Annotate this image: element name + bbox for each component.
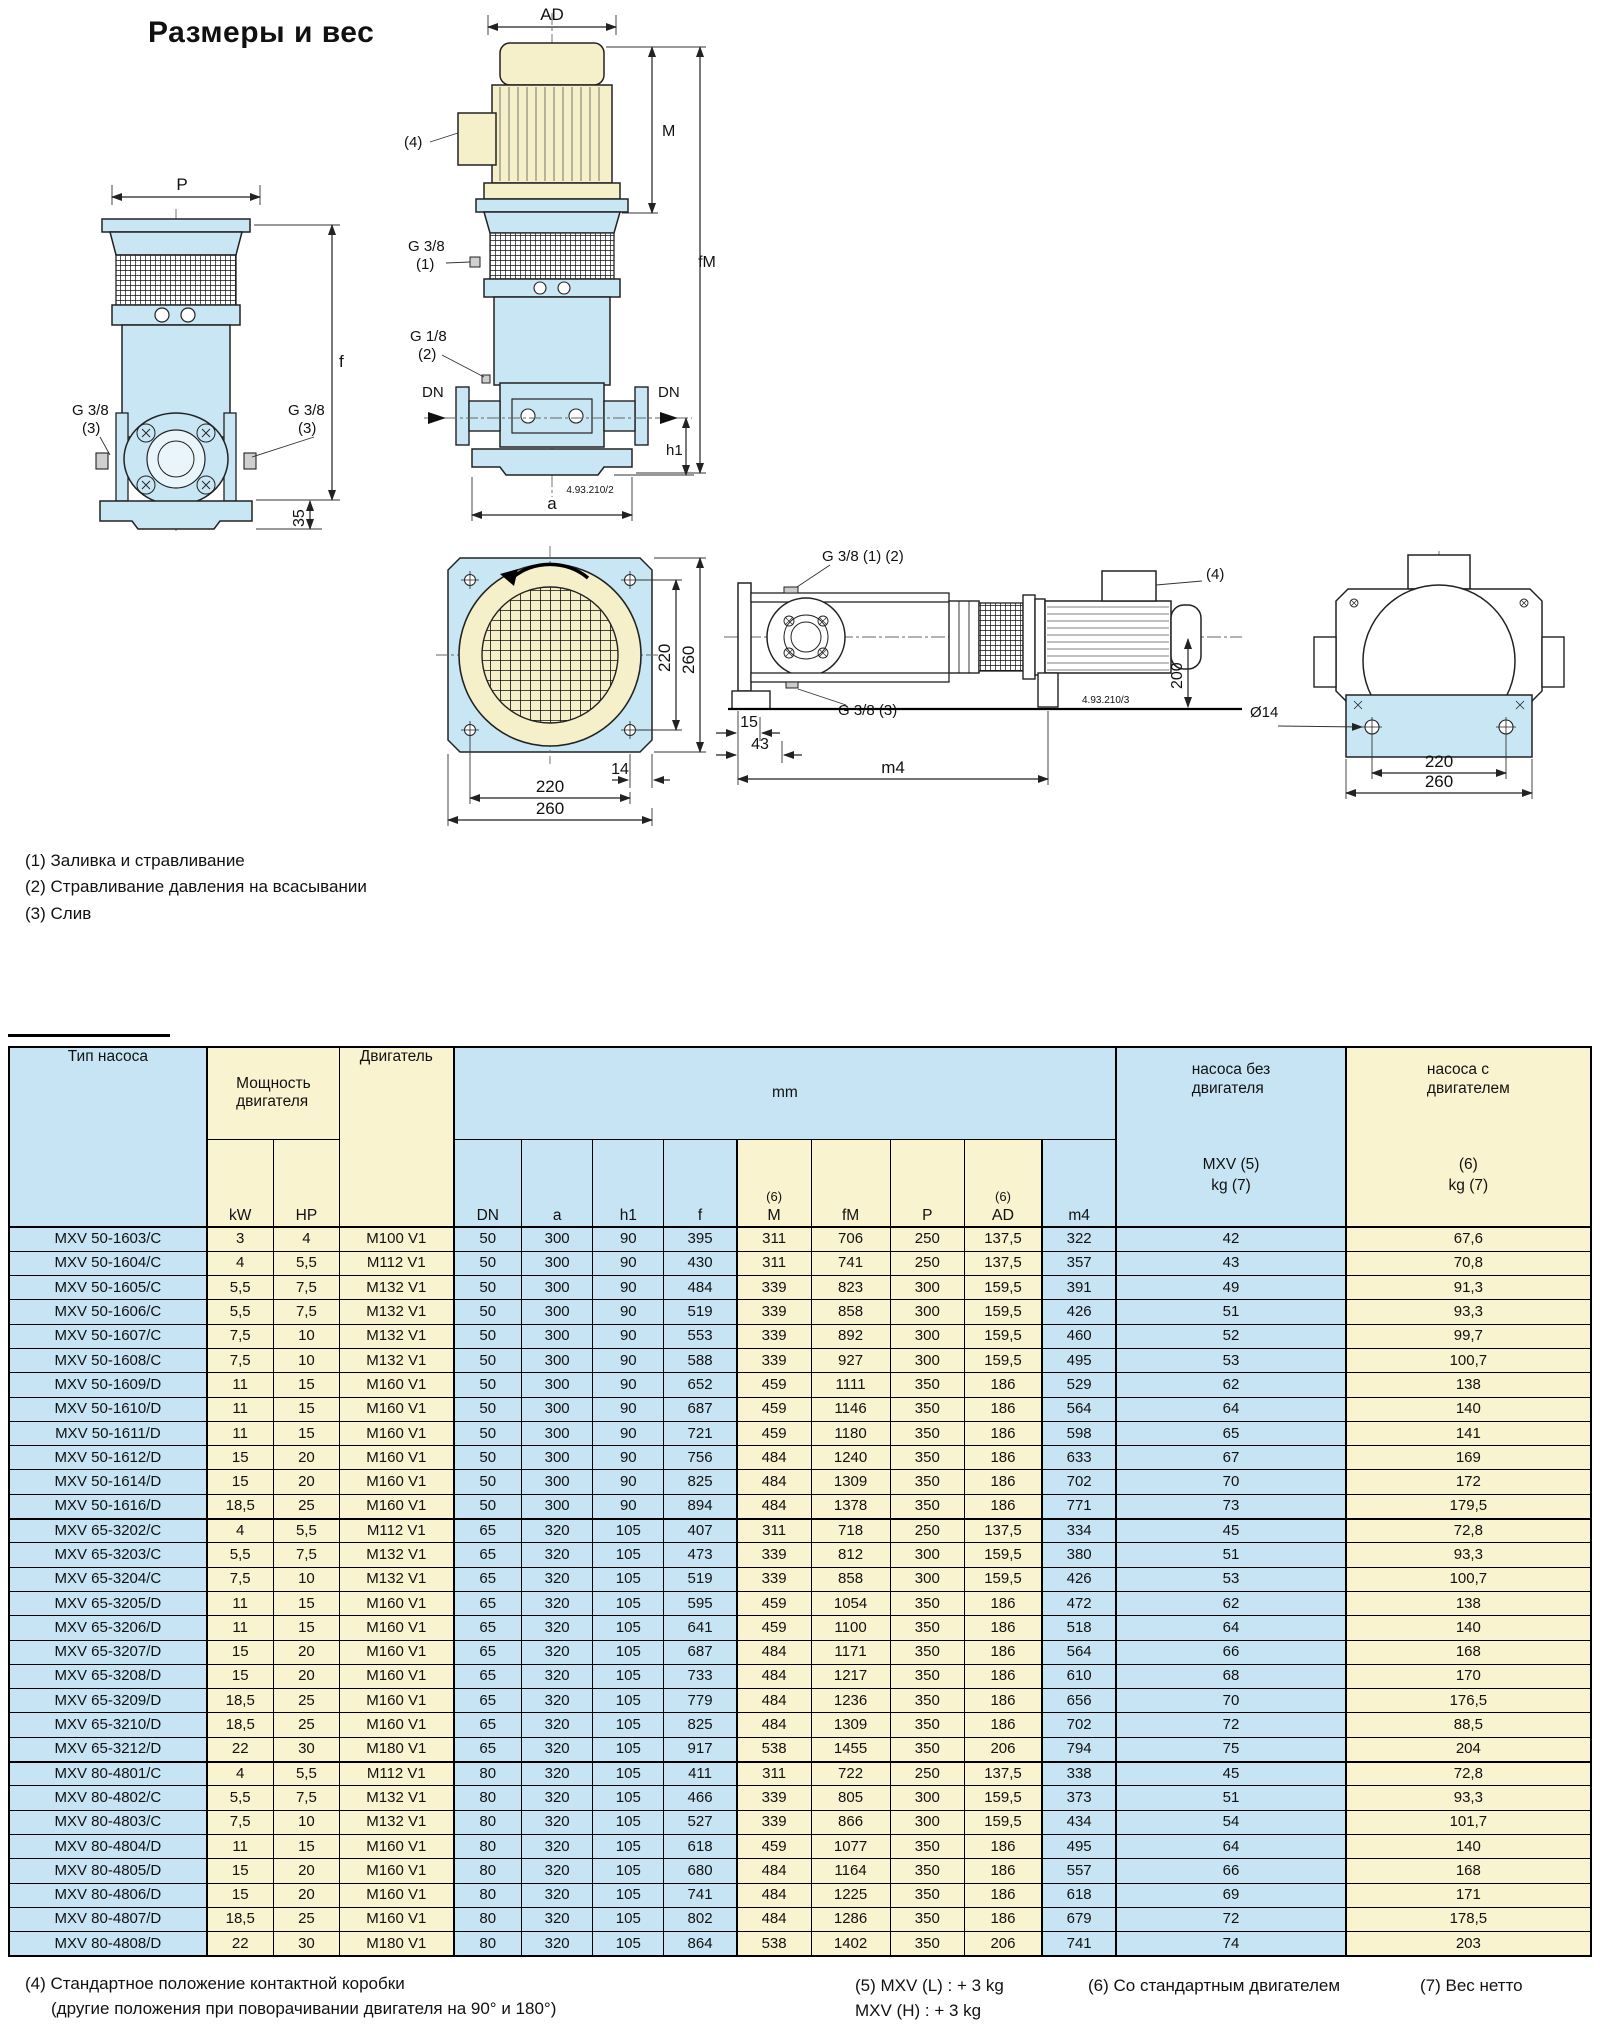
value-cell: 894	[664, 1494, 737, 1518]
value-cell: M132 V1	[340, 1786, 454, 1810]
value-cell: 1240	[811, 1446, 890, 1470]
value-cell: 93,3	[1346, 1786, 1591, 1810]
value-cell: M160 V1	[340, 1591, 454, 1615]
value-cell: 50	[454, 1324, 522, 1348]
table-row: MXV 50-1611/D1115M160 V15030090721459118…	[9, 1421, 1591, 1445]
value-cell: 350	[890, 1591, 964, 1615]
value-cell: 159,5	[964, 1567, 1042, 1591]
value-cell: 62	[1116, 1591, 1345, 1615]
value-cell: 825	[664, 1713, 737, 1737]
value-cell: 25	[273, 1713, 339, 1737]
col-header-with-motor: насоса с двигателем (6) kg (7)	[1346, 1047, 1591, 1227]
value-cell: 15	[207, 1883, 273, 1907]
value-cell: 484	[737, 1664, 811, 1688]
value-cell: 90	[593, 1373, 664, 1397]
pump-type-cell: MXV 65-3207/D	[9, 1640, 207, 1664]
value-cell: 51	[1116, 1543, 1345, 1567]
value-cell: 186	[964, 1591, 1042, 1615]
pump-type-cell: MXV 50-1603/C	[9, 1227, 207, 1251]
table-row: MXV 65-3209/D18,525M160 V165320105779484…	[9, 1689, 1591, 1713]
value-cell: 159,5	[964, 1276, 1042, 1300]
pump-type-cell: MXV 65-3205/D	[9, 1591, 207, 1615]
value-cell: 105	[593, 1713, 664, 1737]
table-row: MXV 80-4804/D1115M160 V18032010561845910…	[9, 1834, 1591, 1858]
value-cell: 459	[737, 1397, 811, 1421]
value-cell: 15	[207, 1640, 273, 1664]
value-cell: 7,5	[273, 1786, 339, 1810]
value-cell: 72,8	[1346, 1762, 1591, 1786]
value-cell: 50	[454, 1494, 522, 1518]
value-cell: 50	[454, 1470, 522, 1494]
value-cell: 100,7	[1346, 1567, 1591, 1591]
value-cell: 656	[1042, 1689, 1116, 1713]
value-cell: M132 V1	[340, 1324, 454, 1348]
value-cell: 598	[1042, 1421, 1116, 1445]
pump-type-cell: MXV 50-1610/D	[9, 1397, 207, 1421]
value-cell: 484	[737, 1907, 811, 1931]
col-header-power: Мощность двигателя	[207, 1047, 340, 1139]
value-cell: 90	[593, 1300, 664, 1324]
pump-with-motor-drawing: AD (4) M fM G 3/8 (1) G 1/8 (2)	[400, 5, 720, 540]
value-cell: 51	[1116, 1300, 1345, 1324]
dim-260-side-label: 260	[679, 646, 698, 674]
value-cell: 64	[1116, 1616, 1345, 1640]
value-cell: 53	[1116, 1348, 1345, 1372]
value-cell: 65	[454, 1713, 522, 1737]
value-cell: 426	[1042, 1300, 1116, 1324]
g38-12-label: G 3/8 (1) (2)	[822, 548, 904, 565]
value-cell: 90	[593, 1348, 664, 1372]
value-cell: 373	[1042, 1786, 1116, 1810]
value-cell: 250	[890, 1519, 964, 1543]
value-cell: 50	[454, 1348, 522, 1372]
value-cell: 300	[522, 1494, 593, 1518]
value-cell: 652	[664, 1373, 737, 1397]
value-cell: 88,5	[1346, 1713, 1591, 1737]
value-cell: 350	[890, 1494, 964, 1518]
value-cell: 168	[1346, 1640, 1591, 1664]
value-cell: 80	[454, 1762, 522, 1786]
value-cell: 300	[522, 1300, 593, 1324]
value-cell: 702	[1042, 1713, 1116, 1737]
pump-type-cell: MXV 65-3212/D	[9, 1737, 207, 1761]
value-cell: 495	[1042, 1834, 1116, 1858]
value-cell: 459	[737, 1834, 811, 1858]
value-cell: 1171	[811, 1640, 890, 1664]
table-row: MXV 50-1608/C7,510M132 V1503009058833992…	[9, 1348, 1591, 1372]
value-cell: 858	[811, 1300, 890, 1324]
value-cell: 320	[522, 1713, 593, 1737]
value-cell: 105	[593, 1519, 664, 1543]
value-cell: 5,5	[273, 1519, 339, 1543]
value-cell: 186	[964, 1494, 1042, 1518]
value-cell: 90	[593, 1470, 664, 1494]
value-cell: 30	[273, 1932, 339, 1956]
value-cell: 823	[811, 1276, 890, 1300]
value-cell: 756	[664, 1446, 737, 1470]
value-cell: 300	[522, 1348, 593, 1372]
value-cell: 176,5	[1346, 1689, 1591, 1713]
value-cell: 7,5	[273, 1276, 339, 1300]
dim-43-label: 43	[751, 736, 769, 753]
value-cell: 320	[522, 1543, 593, 1567]
value-cell: 22	[207, 1932, 273, 1956]
value-cell: 80	[454, 1932, 522, 1956]
value-cell: M132 V1	[340, 1567, 454, 1591]
pump-type-cell: MXV 80-4801/C	[9, 1762, 207, 1786]
value-cell: 186	[964, 1640, 1042, 1664]
value-cell: 1455	[811, 1737, 890, 1761]
value-cell: 65	[454, 1616, 522, 1640]
table-row: MXV 80-4806/D1520M160 V18032010574148412…	[9, 1883, 1591, 1907]
value-cell: 65	[454, 1519, 522, 1543]
value-cell: 472	[1042, 1591, 1116, 1615]
value-cell: 1236	[811, 1689, 890, 1713]
value-cell: 1100	[811, 1616, 890, 1640]
value-cell: M180 V1	[340, 1737, 454, 1761]
value-cell: 518	[1042, 1616, 1116, 1640]
value-cell: 1309	[811, 1713, 890, 1737]
value-cell: 320	[522, 1932, 593, 1956]
value-cell: 186	[964, 1470, 1042, 1494]
pump-type-cell: MXV 65-3210/D	[9, 1713, 207, 1737]
col-header-kw: kW	[207, 1139, 273, 1227]
value-cell: 70	[1116, 1689, 1345, 1713]
table-row: MXV 65-3207/D1520M160 V16532010568748411…	[9, 1640, 1591, 1664]
value-cell: 553	[664, 1324, 737, 1348]
value-cell: 802	[664, 1907, 737, 1931]
value-cell: 50	[454, 1251, 522, 1275]
value-cell: 519	[664, 1300, 737, 1324]
value-cell: 93,3	[1346, 1300, 1591, 1324]
g18-label: G 1/8	[410, 328, 447, 345]
value-cell: 320	[522, 1834, 593, 1858]
value-cell: 892	[811, 1324, 890, 1348]
value-cell: 1225	[811, 1883, 890, 1907]
value-cell: 50	[454, 1276, 522, 1300]
value-cell: 300	[522, 1324, 593, 1348]
col-header-a: a	[522, 1139, 593, 1227]
pump-type-cell: MXV 50-1612/D	[9, 1446, 207, 1470]
value-cell: 7,5	[273, 1300, 339, 1324]
value-cell: 595	[664, 1591, 737, 1615]
value-cell: 172	[1346, 1470, 1591, 1494]
value-cell: 300	[522, 1251, 593, 1275]
value-cell: 52	[1116, 1324, 1345, 1348]
value-cell: M160 V1	[340, 1640, 454, 1664]
value-cell: 339	[737, 1786, 811, 1810]
value-cell: 339	[737, 1567, 811, 1591]
value-cell: 721	[664, 1421, 737, 1445]
value-cell: 50	[454, 1446, 522, 1470]
value-cell: 825	[664, 1470, 737, 1494]
value-cell: 105	[593, 1640, 664, 1664]
ref3-right-label: (3)	[298, 420, 316, 437]
value-cell: 395	[664, 1227, 737, 1251]
value-cell: 1164	[811, 1859, 890, 1883]
value-cell: 320	[522, 1664, 593, 1688]
value-cell: 138	[1346, 1591, 1591, 1615]
note-2: (2) Стравливание давления на всасывании	[25, 874, 367, 900]
value-cell: 105	[593, 1762, 664, 1786]
catalog-page: Размеры и вес P f	[0, 0, 1600, 2040]
table-row: MXV 50-1605/C5,57,5M132 V150300904843398…	[9, 1276, 1591, 1300]
value-cell: 380	[1042, 1543, 1116, 1567]
value-cell: 105	[593, 1664, 664, 1688]
value-cell: 917	[664, 1737, 737, 1761]
value-cell: 90	[593, 1251, 664, 1275]
value-cell: 320	[522, 1762, 593, 1786]
value-cell: 805	[811, 1786, 890, 1810]
value-cell: 72	[1116, 1907, 1345, 1931]
value-cell: 300	[890, 1567, 964, 1591]
value-cell: 186	[964, 1664, 1042, 1688]
value-cell: 300	[890, 1276, 964, 1300]
table-row: MXV 50-1616/D18,525M160 V150300908944841…	[9, 1494, 1591, 1518]
value-cell: 178,5	[1346, 1907, 1591, 1931]
table-row: MXV 65-3210/D18,525M160 V165320105825484…	[9, 1713, 1591, 1737]
value-cell: 4	[207, 1251, 273, 1275]
value-cell: 300	[890, 1324, 964, 1348]
value-cell: 15	[273, 1616, 339, 1640]
value-cell: 459	[737, 1373, 811, 1397]
value-cell: 484	[737, 1470, 811, 1494]
value-cell: 138	[1346, 1373, 1591, 1397]
col-header-M: (6) M	[737, 1139, 811, 1227]
value-cell: 320	[522, 1883, 593, 1907]
value-cell: 171	[1346, 1883, 1591, 1907]
value-cell: 350	[890, 1446, 964, 1470]
value-cell: 484	[737, 1883, 811, 1907]
col-header-motor: Двигатель	[340, 1047, 454, 1227]
value-cell: 30	[273, 1737, 339, 1761]
value-cell: 65	[454, 1543, 522, 1567]
value-cell: 20	[273, 1470, 339, 1494]
value-cell: 679	[1042, 1907, 1116, 1931]
value-cell: 339	[737, 1348, 811, 1372]
value-cell: 169	[1346, 1446, 1591, 1470]
value-cell: 722	[811, 1762, 890, 1786]
value-cell: 771	[1042, 1494, 1116, 1518]
ref4-side-label: (4)	[1206, 566, 1224, 583]
value-cell: 484	[737, 1689, 811, 1713]
value-cell: 350	[890, 1737, 964, 1761]
table-row: MXV 65-3212/D2230M180 V16532010591753814…	[9, 1737, 1591, 1761]
dia14-label: Ø14	[1250, 704, 1278, 721]
value-cell: 484	[664, 1276, 737, 1300]
pump-type-cell: MXV 80-4808/D	[9, 1932, 207, 1956]
value-cell: M160 V1	[340, 1713, 454, 1737]
value-cell: 300	[890, 1300, 964, 1324]
g38-right-label: G 3/8	[288, 402, 325, 419]
value-cell: 105	[593, 1932, 664, 1956]
value-cell: 5,5	[273, 1762, 339, 1786]
value-cell: M160 V1	[340, 1907, 454, 1931]
value-cell: 72	[1116, 1713, 1345, 1737]
value-cell: 64	[1116, 1397, 1345, 1421]
value-cell: 75	[1116, 1737, 1345, 1761]
value-cell: 320	[522, 1907, 593, 1931]
value-cell: 473	[664, 1543, 737, 1567]
value-cell: 105	[593, 1689, 664, 1713]
dim-220-side-label: 220	[655, 644, 674, 672]
value-cell: 633	[1042, 1446, 1116, 1470]
dimensions-weights-table: Тип насоса Мощность двигателя Двигатель …	[8, 1046, 1592, 1957]
value-cell: 66	[1116, 1859, 1345, 1883]
note-3: (3) Слив	[25, 901, 367, 927]
value-cell: 5,5	[207, 1786, 273, 1810]
value-cell: 67	[1116, 1446, 1345, 1470]
pump-type-cell: MXV 50-1614/D	[9, 1470, 207, 1494]
value-cell: 105	[593, 1859, 664, 1883]
value-cell: 69	[1116, 1883, 1345, 1907]
value-cell: 350	[890, 1689, 964, 1713]
pump-type-cell: MXV 65-3206/D	[9, 1616, 207, 1640]
value-cell: 618	[1042, 1883, 1116, 1907]
value-cell: 15	[273, 1834, 339, 1858]
pump-type-cell: MXV 80-4807/D	[9, 1907, 207, 1931]
value-cell: M112 V1	[340, 1251, 454, 1275]
dn-right-label: DN	[658, 384, 680, 401]
value-cell: 741	[664, 1883, 737, 1907]
value-cell: 1054	[811, 1591, 890, 1615]
value-cell: 11	[207, 1397, 273, 1421]
value-cell: 67,6	[1346, 1227, 1591, 1251]
value-cell: 484	[737, 1494, 811, 1518]
value-cell: M160 V1	[340, 1421, 454, 1445]
value-cell: 350	[890, 1373, 964, 1397]
page-title: Размеры и вес	[148, 16, 374, 50]
table-row: MXV 65-3208/D1520M160 V16532010573348412…	[9, 1664, 1591, 1688]
value-cell: 15	[273, 1421, 339, 1445]
dim-P-label: P	[176, 175, 187, 194]
value-cell: 459	[737, 1591, 811, 1615]
value-cell: 170	[1346, 1664, 1591, 1688]
table-row: MXV 50-1614/D1520M160 V15030090825484130…	[9, 1470, 1591, 1494]
value-cell: 320	[522, 1640, 593, 1664]
pump-type-cell: MXV 65-3204/C	[9, 1567, 207, 1591]
value-cell: 300	[890, 1348, 964, 1372]
value-cell: 49	[1116, 1276, 1345, 1300]
value-cell: 320	[522, 1689, 593, 1713]
dim-a-label: a	[547, 494, 557, 513]
pump-type-cell: MXV 80-4802/C	[9, 1786, 207, 1810]
drawing-notes: (1) Заливка и стравливание (2) Стравлива…	[25, 848, 367, 927]
value-cell: 334	[1042, 1519, 1116, 1543]
value-cell: 99,7	[1346, 1324, 1591, 1348]
value-cell: 140	[1346, 1834, 1591, 1858]
col-header-f: f	[664, 1139, 737, 1227]
value-cell: 300	[890, 1786, 964, 1810]
value-cell: 7,5	[207, 1810, 273, 1834]
value-cell: 65	[454, 1567, 522, 1591]
value-cell: 529	[1042, 1373, 1116, 1397]
pump-type-cell: MXV 80-4805/D	[9, 1859, 207, 1883]
value-cell: 25	[273, 1494, 339, 1518]
dim-AD-label: AD	[540, 5, 564, 24]
value-cell: 65	[454, 1640, 522, 1664]
value-cell: 927	[811, 1348, 890, 1372]
value-cell: 186	[964, 1421, 1042, 1445]
value-cell: 350	[890, 1664, 964, 1688]
value-cell: M180 V1	[340, 1932, 454, 1956]
value-cell: 300	[890, 1543, 964, 1567]
pump-type-cell: MXV 50-1607/C	[9, 1324, 207, 1348]
value-cell: 105	[593, 1834, 664, 1858]
value-cell: 15	[273, 1591, 339, 1615]
value-cell: 137,5	[964, 1251, 1042, 1275]
value-cell: 391	[1042, 1276, 1116, 1300]
value-cell: 68	[1116, 1664, 1345, 1688]
value-cell: 718	[811, 1519, 890, 1543]
ref1-label: (1)	[416, 256, 434, 273]
table-row: MXV 65-3204/C7,510M132 V1653201055193398…	[9, 1567, 1591, 1591]
value-cell: 105	[593, 1737, 664, 1761]
value-cell: 186	[964, 1907, 1042, 1931]
value-cell: 105	[593, 1883, 664, 1907]
value-cell: 74	[1116, 1932, 1345, 1956]
value-cell: 53	[1116, 1567, 1345, 1591]
value-cell: 65	[1116, 1421, 1345, 1445]
value-cell: 858	[811, 1567, 890, 1591]
col-header-h1: h1	[593, 1139, 664, 1227]
value-cell: 18,5	[207, 1689, 273, 1713]
value-cell: 80	[454, 1907, 522, 1931]
value-cell: 105	[593, 1616, 664, 1640]
value-cell: 159,5	[964, 1348, 1042, 1372]
value-cell: 3	[207, 1227, 273, 1251]
drawing-code-3: 4.93.210/3	[1082, 695, 1130, 706]
table-row: MXV 80-4801/C45,5M112 V18032010541131172…	[9, 1762, 1591, 1786]
value-cell: 70,8	[1346, 1251, 1591, 1275]
value-cell: 338	[1042, 1762, 1116, 1786]
value-cell: M112 V1	[340, 1762, 454, 1786]
value-cell: 65	[454, 1689, 522, 1713]
horizontal-pump-drawing: G 3/8 (1) (2) G 3/8 (3) (4)	[710, 545, 1250, 790]
value-cell: 588	[664, 1348, 737, 1372]
value-cell: 72,8	[1346, 1519, 1591, 1543]
pump-type-cell: MXV 65-3208/D	[9, 1664, 207, 1688]
value-cell: 22	[207, 1737, 273, 1761]
value-cell: 426	[1042, 1567, 1116, 1591]
value-cell: 20	[273, 1446, 339, 1470]
value-cell: 11	[207, 1421, 273, 1445]
dim-f-label: f	[339, 352, 344, 371]
value-cell: 101,7	[1346, 1810, 1591, 1834]
value-cell: M132 V1	[340, 1543, 454, 1567]
table-row: MXV 50-1612/D1520M160 V15030090756484124…	[9, 1446, 1591, 1470]
footnote-4: (4) Стандартное положение контактной кор…	[25, 1972, 556, 2021]
dim-h1-label: h1	[666, 442, 683, 459]
value-cell: 300	[522, 1446, 593, 1470]
value-cell: 1309	[811, 1470, 890, 1494]
value-cell: 564	[1042, 1397, 1116, 1421]
value-cell: 159,5	[964, 1324, 1042, 1348]
value-cell: 320	[522, 1786, 593, 1810]
value-cell: M160 V1	[340, 1664, 454, 1688]
value-cell: 320	[522, 1737, 593, 1761]
motor-end-view-drawing: Ø14 220 260	[1250, 543, 1600, 801]
value-cell: M132 V1	[340, 1300, 454, 1324]
value-cell: 50	[454, 1300, 522, 1324]
value-cell: 100,7	[1346, 1348, 1591, 1372]
value-cell: 186	[964, 1834, 1042, 1858]
value-cell: 25	[273, 1689, 339, 1713]
value-cell: 357	[1042, 1251, 1116, 1275]
value-cell: 779	[664, 1689, 737, 1713]
value-cell: 15	[273, 1373, 339, 1397]
pump-type-cell: MXV 65-3203/C	[9, 1543, 207, 1567]
